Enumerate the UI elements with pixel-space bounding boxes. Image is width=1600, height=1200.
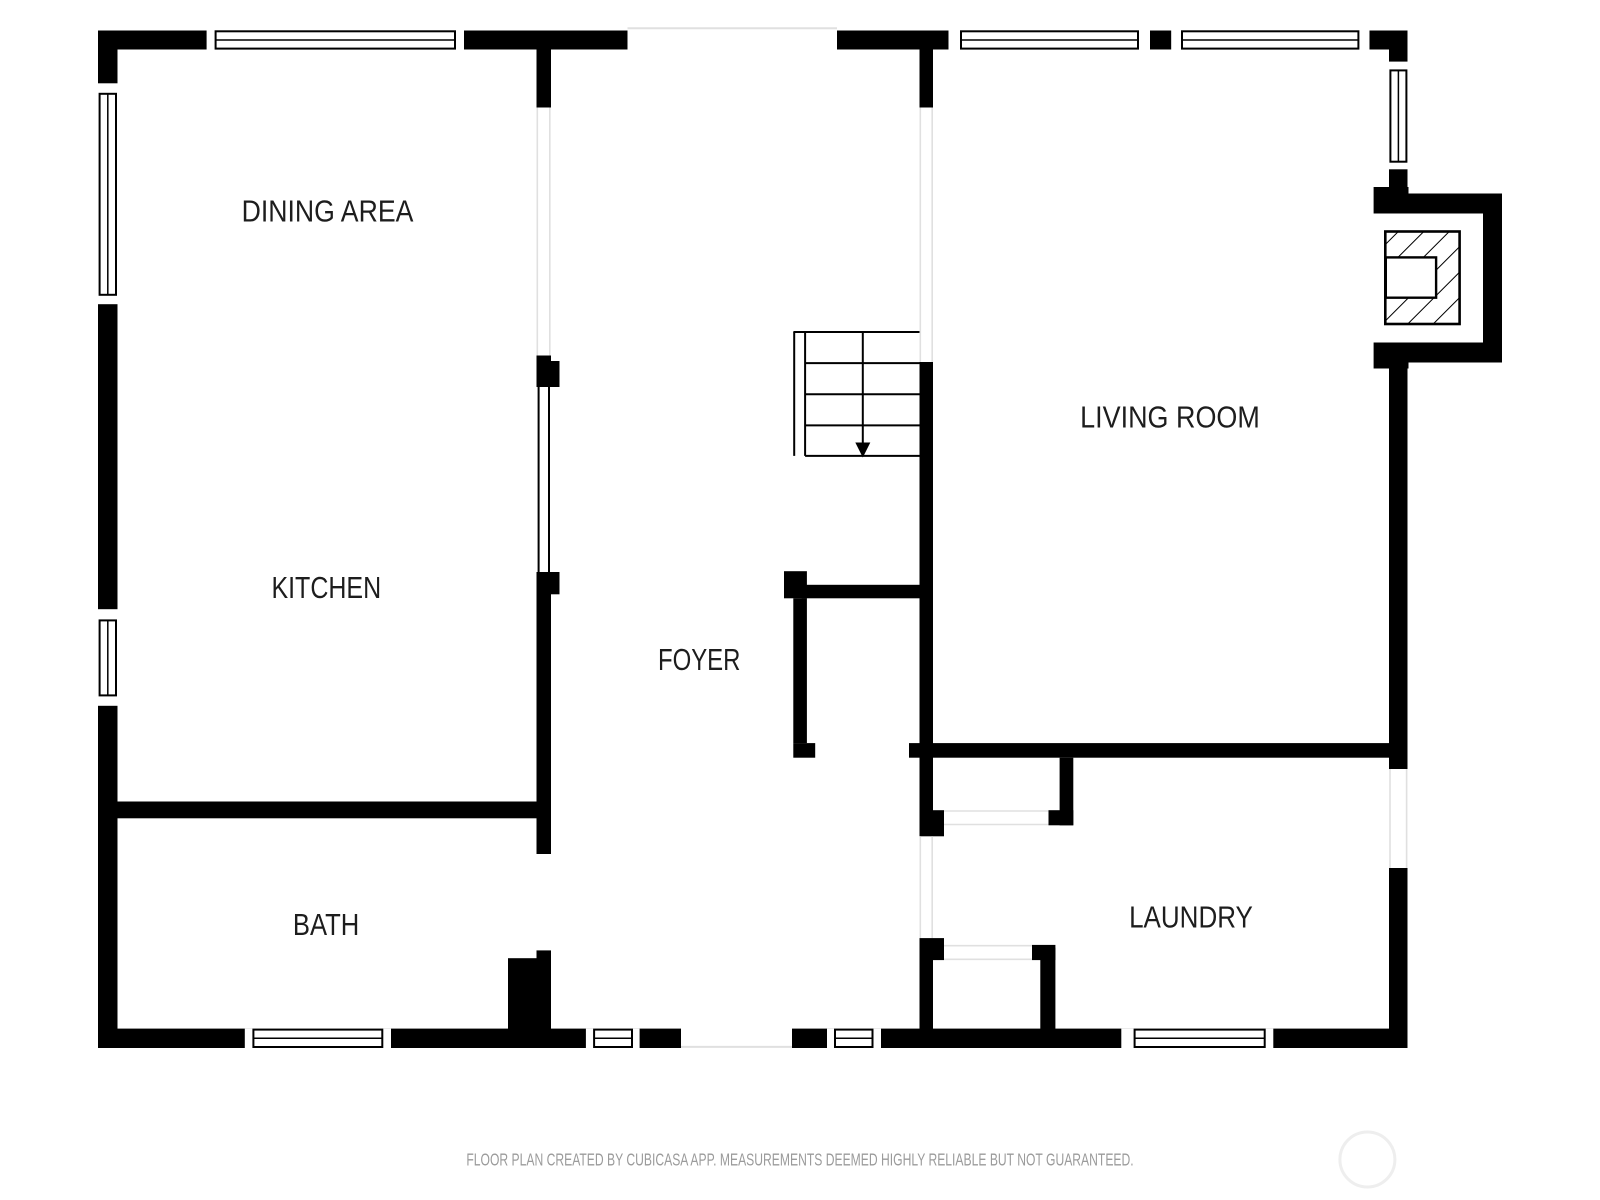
svg-text:FOYER: FOYER — [658, 642, 741, 677]
svg-text:LAUNDRY: LAUNDRY — [1129, 900, 1253, 935]
svg-text:BATH: BATH — [293, 907, 359, 942]
svg-text:LIVING ROOM: LIVING ROOM — [1080, 399, 1260, 434]
svg-text:DINING AREA: DINING AREA — [242, 194, 414, 229]
svg-text:FLOOR PLAN CREATED BY CUBICASA: FLOOR PLAN CREATED BY CUBICASA APP. MEAS… — [466, 1150, 1133, 1170]
svg-text:KITCHEN: KITCHEN — [271, 570, 381, 605]
